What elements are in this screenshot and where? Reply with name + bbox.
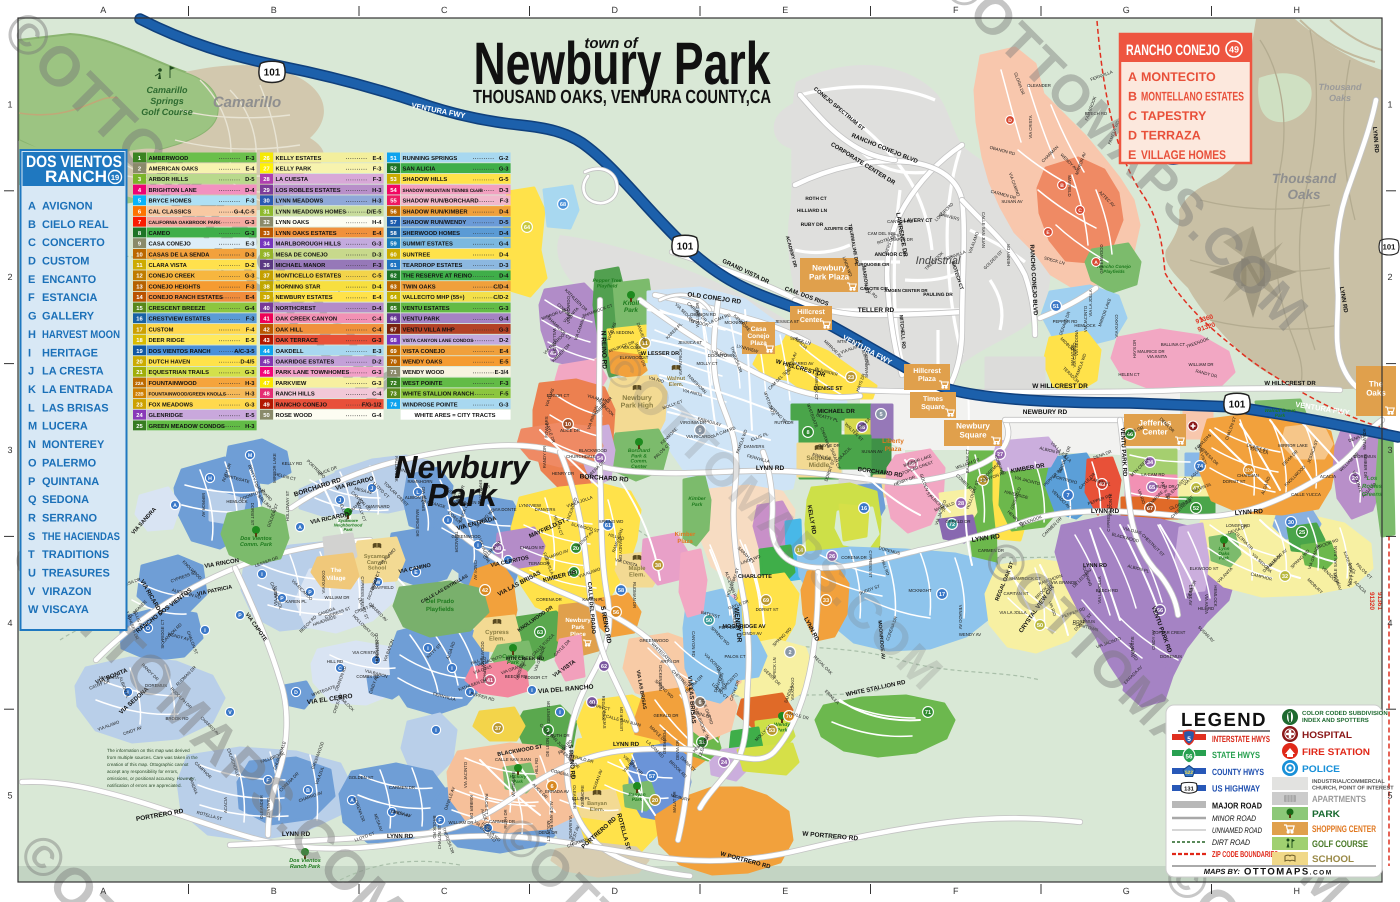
svg-text:S: S [28,531,35,543]
svg-text:H-3: H-3 [245,380,255,387]
svg-text:7: 7 [1066,493,1069,499]
svg-text:E-5: E-5 [499,359,509,365]
svg-text:Camarillo: Camarillo [146,85,188,95]
svg-text:POLICE: POLICE [1302,764,1340,775]
svg-text:4: 4 [1387,618,1392,628]
svg-text:EDGOR CT: EDGOR CT [547,393,570,398]
svg-text:JESSICA ST: JESSICA ST [775,319,800,324]
svg-text:W HILLCREST DR: W HILLCREST DR [1032,383,1088,390]
svg-text:CUSTOM: CUSTOM [149,326,174,333]
svg-text:19: 19 [136,348,143,355]
svg-text:CHARLOTTE: CHARLOTTE [738,574,772,580]
svg-text:SEDONA: SEDONA [42,494,89,506]
svg-text:SAN ALICIA: SAN ALICIA [403,166,437,173]
svg-text:D-4: D-4 [499,209,509,215]
svg-text:28: 28 [263,176,270,183]
svg-text:Park: Park [632,797,643,803]
svg-text:CALLE SAN JUAN: CALLE SAN JUAN [981,212,986,248]
svg-text:ALBION PL: ALBION PL [405,495,428,500]
svg-text:G-3: G-3 [372,241,382,248]
svg-text:WENDY OAKS: WENDY OAKS [403,358,443,365]
svg-text:54: 54 [390,188,397,194]
svg-text:MAPS BY:: MAPS BY: [1204,867,1241,876]
svg-text:Park: Park [571,624,585,631]
svg-text:Hillcrest: Hillcrest [913,367,941,375]
svg-text:73: 73 [390,391,397,398]
svg-text:2: 2 [7,272,12,282]
svg-text:LAVERY CT: LAVERY CT [904,218,934,224]
svg-text:39: 39 [263,294,270,301]
svg-text:58: 58 [390,230,397,237]
svg-text:KIMBER DR: KIMBER DR [1363,454,1368,478]
svg-text:LONGFORD: LONGFORD [1226,523,1250,528]
svg-text:TAPESTRY: TAPESTRY [1141,109,1207,123]
svg-text:49: 49 [263,401,270,408]
svg-text:RUBY DR: RUBY DR [801,222,824,228]
svg-text:H: H [208,476,212,482]
svg-text:W: W [28,604,39,616]
svg-text:LYNN RD: LYNN RD [1083,563,1107,569]
svg-text:LYNN RD: LYNN RD [1091,508,1120,515]
svg-text:32: 32 [263,219,269,226]
svg-text:F-3: F-3 [246,155,255,162]
svg-text:WENDY WOOD: WENDY WOOD [403,369,445,376]
svg-text:5: 5 [1187,736,1191,743]
svg-text:KNOLLWOOD: KNOLLWOOD [374,633,379,661]
svg-text:27: 27 [263,166,269,173]
svg-text:N: N [28,439,36,451]
svg-text:TERRAZA: TERRAZA [1141,129,1201,143]
svg-text:D-5: D-5 [245,177,255,183]
svg-text:M: M [248,453,252,459]
svg-text:12: 12 [136,273,142,280]
svg-text:Times: Times [923,395,943,403]
svg-text:LYNN RD: LYNN RD [613,741,640,748]
svg-text:34: 34 [263,241,270,248]
svg-text:28: 28 [958,501,964,507]
svg-text:VIA CRISTA: VIA CRISTA [352,650,375,655]
svg-text:AMGEN CENTER DR: AMGEN CENTER DR [884,288,928,293]
svg-text:SHADOW MOUNTAIN TENNIS CLUB: SHADOW MOUNTAIN TENNIS CLUB [403,188,484,193]
svg-text:CINDY AV: CINDY AV [473,560,478,580]
svg-text:SHADOW HILLS: SHADOW HILLS [403,176,448,183]
svg-text:VIA ANITA: VIA ANITA [1147,354,1167,359]
svg-text:Thousand: Thousand [1272,171,1337,186]
svg-text:F-3: F-3 [246,316,255,323]
svg-text:OAK HILL: OAK HILL [276,326,304,333]
svg-text:MONTELLANO ESTATES: MONTELLANO ESTATES [1141,90,1244,104]
svg-text:13: 13 [136,283,143,290]
svg-text:15: 15 [136,306,143,312]
svg-text:TOPLAR CREST: TOPLAR CREST [1153,630,1186,635]
svg-text:KELLY RD: KELLY RD [282,461,302,466]
svg-text:accept any responsibility for: accept any responsibility for errors, [107,769,178,774]
svg-text:THE HACIENDAS: THE HACIENDAS [42,531,120,543]
svg-text:CORENA DR: CORENA DR [536,597,562,602]
svg-text:ACACIA: ACACIA [1320,474,1336,479]
svg-text:VENTU VILLA MHP: VENTU VILLA MHP [403,327,455,333]
svg-text:Plaza: Plaza [918,375,936,383]
svg-text:I: I [28,347,31,359]
svg-text:16: 16 [861,506,867,512]
svg-text:38: 38 [263,283,270,290]
svg-text:Oaks: Oaks [1287,187,1321,202]
svg-text:PALOS CT: PALOS CT [725,654,746,659]
svg-text:MONTICELLO ESTATES: MONTICELLO ESTATES [276,273,342,280]
svg-text:4: 4 [7,618,12,628]
svg-text:LA ENTRADA: LA ENTRADA [42,384,113,396]
svg-text:MAJOR ROAD: MAJOR ROAD [1212,801,1262,811]
svg-text:F-3: F-3 [500,198,509,205]
svg-text:H: H [1294,886,1301,896]
svg-text:MAYFIELD: MAYFIELD [1067,175,1072,196]
svg-text:DORSIT ST: DORSIT ST [250,503,255,526]
svg-text:35: 35 [263,251,270,258]
svg-text:EDGOR CT: EDGOR CT [525,675,548,680]
svg-text:E-4: E-4 [372,295,382,301]
svg-text:Playfields: Playfields [426,606,455,613]
svg-text:HEMLOCK: HEMLOCK [1213,585,1218,606]
svg-text:71: 71 [925,710,931,716]
svg-text:Kimber: Kimber [675,531,696,538]
svg-text:Industrial: Industrial [916,255,961,267]
svg-text:MONTEREY: MONTEREY [42,439,105,451]
svg-text:48: 48 [263,391,270,398]
svg-text:C: C [1128,109,1137,123]
svg-text:E: E [782,5,788,15]
svg-text:C/D-4: C/D-4 [493,283,509,290]
svg-text:A: A [1094,260,1098,266]
svg-text:F: F [438,818,441,824]
svg-text:WHITE ARES = CITY TRACTS: WHITE ARES = CITY TRACTS [414,412,495,419]
svg-text:BROOK RD: BROOK RD [432,816,437,839]
svg-text:VILLAGE HOMES: VILLAGE HOMES [1141,148,1226,162]
svg-text:PARK LANE TOWNHOMES: PARK LANE TOWNHOMES [276,369,350,376]
svg-text:H-3: H-3 [372,187,382,194]
svg-text:C: C [28,237,36,249]
svg-text:P: P [28,476,35,488]
svg-text:CYPRESS ST: CYPRESS ST [868,550,873,578]
svg-text:U: U [28,568,36,580]
svg-text:24: 24 [136,412,143,419]
svg-text:3: 3 [1387,445,1392,455]
svg-text:Newbury: Newbury [565,617,591,624]
svg-text:30: 30 [1288,520,1294,526]
svg-text:G-4,C-5: G-4,C-5 [234,208,255,215]
svg-text:HILLIARD LN: HILLIARD LN [797,208,828,214]
svg-text:Thousand: Thousand [1319,82,1362,92]
svg-text:G-3: G-3 [499,401,509,408]
svg-text:E-4: E-4 [372,231,382,237]
svg-text:ARBOR HILLS: ARBOR HILLS [149,176,189,183]
svg-text:33: 33 [263,230,270,237]
svg-text:G-3: G-3 [245,401,255,408]
svg-text:RUTH DR: RUTH DR [1155,484,1174,489]
svg-text:CINDY AV: CINDY AV [742,631,762,636]
svg-text:50: 50 [263,412,269,419]
svg-text:20: 20 [652,798,658,804]
svg-text:59: 59 [390,241,397,248]
svg-text:VENTU ESTATES: VENTU ESTATES [403,305,450,312]
svg-text:Springs: Springs [150,96,184,106]
svg-text:DOS VIENTOS RANCH: DOS VIENTOS RANCH [149,348,211,355]
svg-text:Park: Park [1219,556,1229,561]
svg-text:D: D [612,886,619,896]
svg-text:creation of this map. Ottograp: creation of this map. Ottographic cannot [107,762,189,767]
svg-text:E-3: E-3 [245,241,255,248]
svg-text:CONEJO CREEK: CONEJO CREEK [149,273,196,280]
svg-text:R: R [28,513,36,525]
svg-text:RANCHO CONEJO: RANCHO CONEJO [1126,42,1220,59]
svg-text:G-4: G-4 [372,412,382,419]
svg-text:WILLIAM DR: WILLIAM DR [1188,362,1213,367]
svg-text:41: 41 [263,317,270,323]
svg-text:Comm. Park: Comm. Park [240,542,273,548]
svg-text:HILL RD: HILL RD [327,659,343,664]
svg-text:G-3: G-3 [499,305,509,312]
svg-text:Village: Village [326,575,346,582]
svg-text:BLACKWOOD: BLACKWOOD [579,448,607,453]
svg-text:RANCHO CONEJO: RANCHO CONEJO [276,401,328,408]
svg-text:23: 23 [136,401,143,408]
svg-text:WILLIAM DR: WILLIAM DR [448,820,473,825]
svg-text:MICHAEL MANOR: MICHAEL MANOR [276,262,327,269]
svg-text:Plaza: Plaza [885,446,902,453]
svg-text:Center: Center [800,317,822,324]
svg-text:A: A [100,5,106,15]
svg-text:8: 8 [806,430,809,436]
svg-text:Newbury: Newbury [956,422,990,431]
svg-text:A: A [28,201,36,213]
svg-text:D-4/5: D-4/5 [240,358,255,365]
svg-text:D-2: D-2 [372,358,381,365]
svg-text:WHITE STALLION RANCH: WHITE STALLION RANCH [403,391,474,398]
svg-text:RANDY DR: RANDY DR [618,539,623,561]
svg-text:E-5: E-5 [245,338,255,344]
svg-text:CLARA VISTA: CLARA VISTA [149,262,188,269]
svg-text:91320: 91320 [1368,592,1375,610]
svg-text:Park: Park [624,307,638,314]
svg-text:DE LEON AV: DE LEON AV [545,731,550,756]
svg-text:B: B [271,886,277,896]
svg-text:H-3: H-3 [245,423,255,430]
svg-text:Center: Center [631,464,648,470]
svg-text:GALLERY: GALLERY [42,311,95,323]
svg-text:68: 68 [560,202,566,208]
svg-text:J: J [339,498,342,504]
svg-text:QUINTANA: QUINTANA [42,476,99,488]
svg-text:Park: Park [1275,413,1286,419]
svg-text:M: M [28,421,37,433]
svg-text:60: 60 [390,251,396,258]
svg-text:SHADOW RUN/WENDY: SHADOW RUN/WENDY [403,219,467,226]
svg-text:MINOR ROAD: MINOR ROAD [1212,814,1256,823]
svg-text:57: 57 [390,220,396,226]
svg-text:AVIGNON: AVIGNON [42,201,93,213]
svg-text:5: 5 [1387,791,1392,801]
svg-text:G-4: G-4 [245,305,255,312]
svg-text:2: 2 [788,650,791,656]
svg-text:51: 51 [1053,304,1059,310]
svg-text:522: 522 [1185,770,1193,776]
svg-text:LA CRESTA: LA CRESTA [42,366,104,378]
svg-text:F/G-1/2: F/G-1/2 [362,401,382,408]
svg-text:H: H [28,329,36,341]
svg-text:MICHAEL DR: MICHAEL DR [817,408,855,415]
svg-text:16: 16 [136,316,143,323]
svg-text:LYNN OAKS ESTATES: LYNN OAKS ESTATES [276,230,337,237]
svg-text:OAKDELL: OAKDELL [276,348,304,355]
svg-text:MAURICE DR: MAURICE DR [415,509,420,536]
svg-text:ENCANTO: ENCANTO [42,274,97,286]
svg-text:Park: Park [692,502,703,508]
svg-text:50: 50 [706,618,712,624]
svg-text:17: 17 [136,327,142,333]
svg-text:17: 17 [939,592,945,598]
svg-text:F-5: F-5 [500,392,509,398]
svg-text:65: 65 [1149,485,1155,491]
svg-text:H-3: H-3 [245,391,255,398]
svg-text:3: 3 [7,445,12,455]
svg-text:TRADITIONS: TRADITIONS [42,549,109,561]
svg-text:LYNN MEADOWS: LYNN MEADOWS [276,198,324,205]
svg-text:ZIP CODE BOUNDARIES: ZIP CODE BOUNDARIES [1212,849,1278,859]
svg-text:42: 42 [482,588,488,594]
svg-text:TERADOR: TERADOR [454,531,459,552]
svg-text:26: 26 [263,155,270,162]
svg-text:Robles: Robles [1362,483,1383,490]
svg-text:from multiple sources. Care wa: from multiple sources. Care was taken in… [107,755,198,760]
svg-text:W HILLCREST DR: W HILLCREST DR [1264,380,1316,387]
svg-text:HOSPITAL: HOSPITAL [1302,730,1352,741]
svg-text:Plaza: Plaza [677,538,693,545]
svg-text:KELLY ESTATES: KELLY ESTATES [276,155,322,162]
svg-text:Oaks: Oaks [1366,388,1386,397]
svg-text:INDEX AND SPOTTERS: INDEX AND SPOTTERS [1302,717,1369,724]
svg-text:CALLE SAN JUAN: CALLE SAN JUAN [495,757,531,762]
svg-text:D: D [294,690,298,696]
svg-text:G-3: G-3 [499,326,509,333]
svg-text:INDUSTRIAL/COMMERCIAL: INDUSTRIAL/COMMERCIAL [1312,779,1385,785]
svg-text:AMBERWOOD: AMBERWOOD [149,155,189,162]
svg-text:D: D [1008,118,1012,124]
svg-text:62: 62 [390,273,396,280]
svg-text:G-3: G-3 [372,369,382,376]
svg-text:ESTANCIA: ESTANCIA [42,292,97,304]
svg-text:TURQUOISE CIR: TURQUOISE CIR [855,262,891,267]
svg-text:Plaza: Plaza [750,340,767,347]
svg-text:55: 55 [390,199,397,205]
svg-text:MALAT DR: MALAT DR [672,791,677,812]
svg-text:VIA ANITA: VIA ANITA [273,586,278,606]
svg-text:J: J [28,366,34,378]
svg-text:HOLLOWAY ST: HOLLOWAY ST [285,490,290,521]
svg-text:RANCH HILLS: RANCH HILLS [276,391,315,398]
svg-text:E-4: E-4 [245,295,255,301]
svg-text:NEWBURY ESTATES: NEWBURY ESTATES [276,294,333,301]
svg-text:101: 101 [264,67,281,79]
svg-text:65: 65 [390,305,397,312]
svg-text:62: 62 [601,664,607,670]
svg-text:G-4: G-4 [499,241,509,248]
svg-text:GOLF COURSE: GOLF COURSE [1312,839,1368,850]
svg-text:CASAS DE LA SENDA: CASAS DE LA SENDA [149,251,211,258]
svg-text:JESSICA ST: JESSICA ST [678,340,703,345]
svg-text:Center: Center [1142,427,1167,436]
svg-text:F-3: F-3 [246,198,255,205]
svg-text:D/E-5: D/E-5 [367,208,383,215]
svg-text:B: B [271,5,277,15]
svg-text:ROTH CT: ROTH CT [805,196,826,202]
svg-text:CIELO REAL: CIELO REAL [42,219,109,231]
svg-text:CALLE YUCCA: CALLE YUCCA [1291,492,1321,497]
svg-text:SHERWOOD HOMES: SHERWOOD HOMES [403,230,461,237]
svg-text:72: 72 [390,380,396,387]
svg-text:LESSER DR: LESSER DR [619,707,624,731]
svg-text:VIA RICARDO: VIA RICARDO [566,295,571,323]
svg-text:10: 10 [136,251,142,258]
svg-text:CAMEO: CAMEO [149,230,171,237]
svg-text:LAS BRISAS: LAS BRISAS [42,402,109,414]
svg-text:F-3: F-3 [373,166,382,173]
svg-text:CARMEN DR: CARMEN DR [389,785,415,790]
svg-text:SERRANO: SERRANO [42,513,97,525]
svg-text:Playfields: Playfields [1103,269,1125,274]
svg-text:2: 2 [138,166,141,173]
svg-text:44: 44 [263,349,270,355]
svg-text:Park: Park [343,527,353,532]
svg-text:DORSIT ST: DORSIT ST [1223,479,1246,484]
svg-text:VIA LA JOLLA: VIA LA JOLLA [1088,289,1093,316]
svg-text:SHOPPING CENTER: SHOPPING CENTER [1312,824,1376,835]
svg-text:E-5: E-5 [245,413,255,419]
svg-text:Elem.: Elem. [590,807,605,813]
svg-text:22B: 22B [135,392,144,397]
svg-text:GOLDEN ST: GOLDEN ST [349,775,374,780]
svg-text:NORTHCREST: NORTHCREST [276,305,317,312]
svg-text:G-3: G-3 [245,273,255,280]
svg-text:69: 69 [390,348,397,355]
svg-text:DEER RIDGE: DEER RIDGE [149,337,185,344]
svg-text:F-3: F-3 [246,283,255,290]
svg-text:omissions, or positional accur: omissions, or positional accuracy. Howev… [107,776,196,781]
svg-text:31: 31 [263,208,270,215]
svg-text:47: 47 [263,381,269,387]
svg-text:CANYON RD: CANYON RD [691,631,696,657]
svg-text:18: 18 [136,337,143,344]
svg-text:37: 37 [495,726,501,732]
svg-text:58: 58 [618,588,624,594]
svg-text:GREENWOOD: GREENWOOD [1099,244,1104,273]
svg-text:AMERICAN OAKS: AMERICAN OAKS [149,166,199,173]
svg-text:131: 131 [1184,785,1194,792]
svg-text:BRIGHTON LANE: BRIGHTON LANE [149,187,197,194]
svg-text:DUTCH HAVEN: DUTCH HAVEN [149,358,191,365]
svg-text:FOX MEADOWS: FOX MEADOWS [149,401,194,408]
svg-text:THOUSAND OAKS, VENTURA COUNTY,: THOUSAND OAKS, VENTURA COUNTY,CA [473,87,771,108]
svg-text:HILL RD: HILL RD [1198,606,1214,611]
svg-text:69: 69 [763,598,769,604]
svg-text:22A: 22A [135,381,144,386]
svg-text:CHURCH, POINT OF INTEREST: CHURCH, POINT OF INTEREST [1312,786,1394,792]
svg-text:F: F [953,5,959,15]
svg-text:52: 52 [390,166,396,173]
svg-text:CONEJO HEIGHTS: CONEJO HEIGHTS [149,283,201,290]
svg-text:D-4: D-4 [372,306,382,312]
svg-text:LYNNVIEW: LYNNVIEW [519,503,542,508]
svg-text:G: G [28,311,37,323]
svg-text:D-4: D-4 [499,231,509,237]
